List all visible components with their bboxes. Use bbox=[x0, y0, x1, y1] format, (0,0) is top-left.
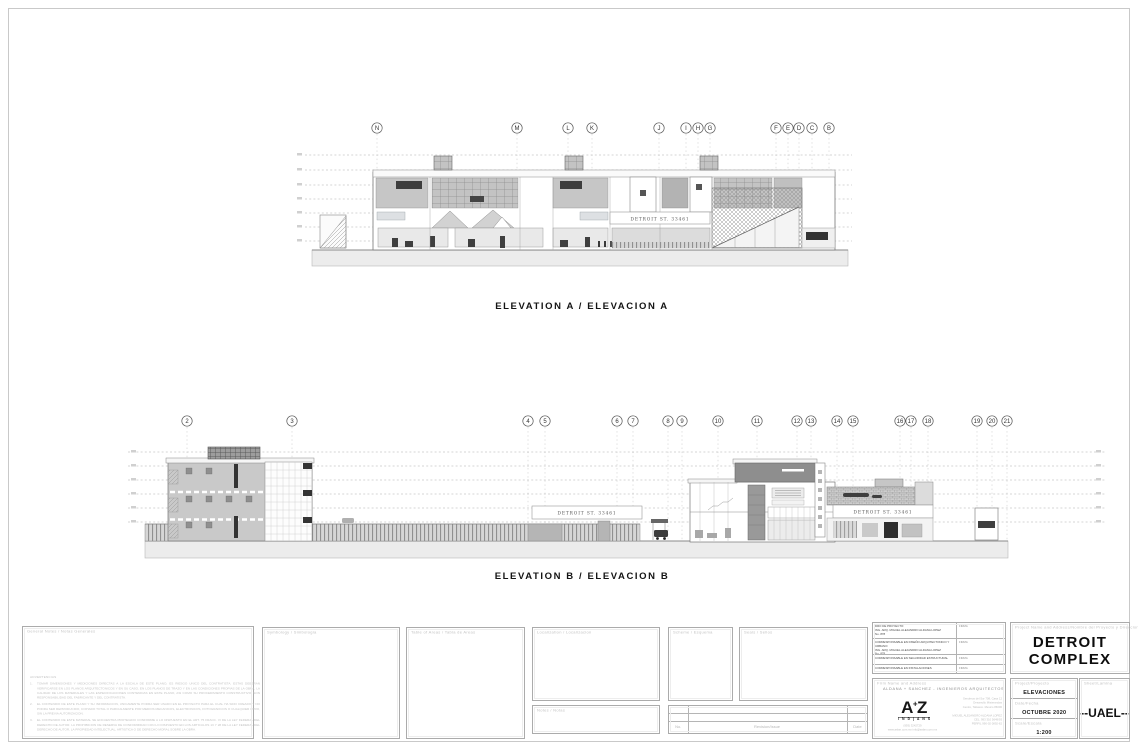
signature-row: CORRESPONSABLE EN DISEÑO ARQUITECTONICO … bbox=[873, 639, 1005, 655]
localization-header: Localization / Localizacion bbox=[537, 630, 592, 635]
elevation-b-drawing: 23456789101112131415161718192021 bbox=[128, 416, 1105, 558]
grid-bubble-label: 12 bbox=[794, 419, 801, 425]
signature-name-2: CORRESPONSABLE EN DISEÑO ARQUITECTONICO … bbox=[875, 641, 956, 655]
street-sign-a-label: DETROIT ST. 33461 bbox=[630, 217, 689, 222]
elevation-a-title: ELEVATION A / ELEVACION A bbox=[417, 301, 747, 312]
grid-bubble-label: 11 bbox=[754, 419, 761, 425]
date-value: OCTUBRE 2020 bbox=[1022, 709, 1066, 715]
grid-bubble-label: F bbox=[774, 126, 778, 132]
signature-firma-3: FIRMA bbox=[959, 657, 982, 660]
grid-bubble-label: 13 bbox=[808, 419, 815, 425]
grid-bubble-label: B bbox=[827, 126, 831, 132]
sheet-label: Sheet/Lamina bbox=[1084, 681, 1112, 686]
sheet-number: --UAEL-- bbox=[1080, 687, 1129, 738]
project-name-box: Project Name and Address/Nombre del Proy… bbox=[1010, 622, 1130, 674]
areas-header: Table of Areas / Tabla de Areas bbox=[411, 630, 475, 635]
grid-bubble-label: J bbox=[658, 126, 661, 132]
sheet-meta-cells: Project/Proyecto ELEVACIONES Date/Fecha … bbox=[1010, 678, 1078, 739]
firm-phone-web: (993) 3242729 www.aslan.com.mx info@asla… bbox=[875, 724, 950, 732]
grid-bubble-label: 16 bbox=[897, 419, 904, 425]
notes-small-header: Notes / Notas bbox=[537, 708, 565, 713]
general-notes-header: General Notes / Notas Generales bbox=[27, 629, 95, 634]
grid-bubble-label: 18 bbox=[925, 419, 932, 425]
symbology-panel: Symbology / Simbologia bbox=[262, 627, 400, 739]
project-cell: Project/Proyecto ELEVACIONES bbox=[1011, 679, 1077, 699]
signatures-table: DRO DE PROYECTO: ING. ARQ. MIGUEL ALEJAN… bbox=[872, 622, 1006, 674]
project-label: Project/Proyecto bbox=[1015, 681, 1049, 686]
grid-bubble-label: 19 bbox=[974, 419, 981, 425]
seals-header: Seals / Sellos bbox=[744, 630, 772, 635]
notes-small-panel: Notes / Notas bbox=[532, 705, 660, 734]
street-sign-b-left-label: DETROIT ST. 33461 bbox=[557, 512, 616, 517]
grid-bubble-label: 17 bbox=[908, 419, 915, 425]
grid-bubble-label: C bbox=[810, 126, 815, 132]
project-name: DETROIT COMPLEX bbox=[1011, 634, 1129, 669]
grid-bubble-label: 21 bbox=[1004, 419, 1011, 425]
street-sign-b-right-label: DETROIT ST. 33461 bbox=[853, 511, 912, 516]
grid-bubble-label: N bbox=[375, 126, 379, 132]
drawing-sheet: NMLKJIHGFEDCB bbox=[0, 0, 1138, 750]
seals-panel: Seals / Sellos bbox=[739, 627, 868, 701]
signature-firma-2: FIRMA bbox=[959, 641, 982, 644]
localization-panel: Localization / Localizacion bbox=[532, 627, 660, 701]
signature-firma-1: FIRMA bbox=[959, 625, 982, 628]
note-1: TOMAR DIMENSIONES Y MEDICIONES DIRECTAS … bbox=[37, 682, 260, 701]
date-label: Date/Fecha bbox=[1015, 701, 1039, 706]
scale-cell: Scale/Escala 1:200 bbox=[1011, 719, 1077, 738]
scale-label: Scale/Escala bbox=[1015, 721, 1042, 726]
signature-row: CORRESPONSABLE EN SEGURIDAD ESTRUCTURAL … bbox=[873, 655, 1005, 665]
sheet-number-cell: Sheet/Lamina --UAEL-- bbox=[1079, 678, 1130, 739]
signature-name-3: CORRESPONSABLE EN SEGURIDAD ESTRUCTURAL bbox=[875, 657, 956, 661]
grid-bubble-label: 15 bbox=[850, 419, 857, 425]
grid-bubble-label: E bbox=[786, 126, 790, 132]
note-2: EL CONTENIDO DE ESTE PLANO Y SU INFORMAC… bbox=[37, 702, 260, 716]
project-value: ELEVACIONES bbox=[1023, 689, 1065, 695]
grid-bubble-label: 10 bbox=[715, 419, 722, 425]
firm-box: Firm Name and Address ALDANA + SANCHEZ -… bbox=[872, 678, 1006, 739]
general-notes-panel: General Notes / Notas Generales ADVERTEN… bbox=[22, 626, 254, 739]
signature-name-1: DRO DE PROYECTO: ING. ARQ. MIGUEL ALEJAN… bbox=[875, 625, 956, 637]
signature-row: CORRESPONSABLE EN INSTALACIONES FIRMA bbox=[873, 665, 1005, 674]
date-cell: Date/Fecha OCTUBRE 2020 bbox=[1011, 699, 1077, 719]
scale-value: 1:200 bbox=[1036, 729, 1051, 735]
firm-header: Firm Name and Address bbox=[877, 681, 926, 686]
elevation-a-drawing: NMLKJIHGFEDCB bbox=[297, 123, 852, 266]
revision-issue-label: Revision/Issue bbox=[754, 724, 780, 729]
project-name-header: Project Name and Address/Nombre del Proy… bbox=[1015, 625, 1138, 630]
firm-logo: A+Z I N D | A N S bbox=[885, 699, 943, 724]
grid-bubble-label: G bbox=[708, 126, 713, 132]
revision-date-label: Date bbox=[853, 724, 861, 729]
grid-bubble-label: 14 bbox=[834, 419, 841, 425]
grid-bubble-label: 20 bbox=[989, 419, 996, 425]
grid-bubble-label: K bbox=[590, 126, 594, 132]
elevation-b-title: ELEVATION B / ELEVACION B bbox=[417, 571, 747, 582]
warnings-title: ADVERTENCIAS bbox=[30, 675, 260, 680]
firm-contact: Senderos del Sur 708, Casa 12 Desarrollo… bbox=[944, 697, 1002, 726]
areas-panel: Table of Areas / Tabla de Areas bbox=[406, 627, 525, 739]
revision-table: No. Revision/Issue Date bbox=[668, 705, 868, 734]
revision-no-label: No. bbox=[675, 724, 681, 729]
signature-name-4: CORRESPONSABLE EN INSTALACIONES bbox=[875, 667, 956, 671]
signature-firma-4: FIRMA bbox=[959, 667, 982, 670]
grid-bubble-label: D bbox=[797, 126, 802, 132]
signature-row: DRO DE PROYECTO: ING. ARQ. MIGUEL ALEJAN… bbox=[873, 623, 1005, 639]
firm-name: ALDANA + SANCHEZ - INGENIEROS ARQUITECTO… bbox=[883, 687, 1004, 691]
note-3: EL CONTENIDO DE ESTE MATERIAL SE ENCUENT… bbox=[37, 718, 260, 732]
scheme-panel: Scheme / Esquema bbox=[668, 627, 733, 701]
scheme-header: Scheme / Esquema bbox=[673, 630, 713, 635]
symbology-header: Symbology / Simbologia bbox=[267, 630, 317, 635]
grid-bubble-label: M bbox=[515, 126, 520, 132]
general-notes-body: ADVERTENCIAS 1. TOMAR DIMENSIONES Y MEDI… bbox=[30, 675, 260, 734]
grid-bubble-label: H bbox=[696, 126, 700, 132]
firm-logo-subtitle: I N D | A N S bbox=[898, 717, 930, 721]
